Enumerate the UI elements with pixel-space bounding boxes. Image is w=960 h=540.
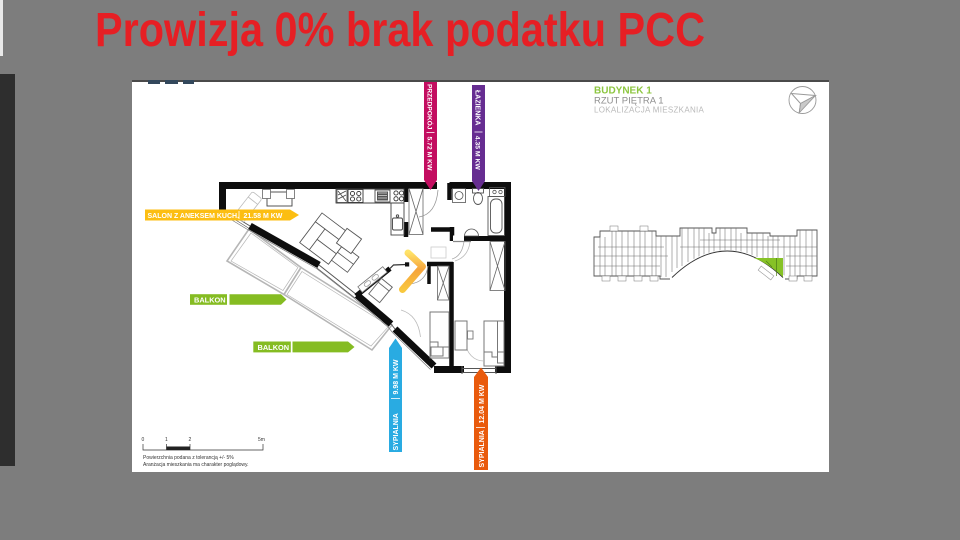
svg-text:5.72 M KW: 5.72 M KW xyxy=(426,137,433,172)
svg-text:4.35 M KW: 4.35 M KW xyxy=(474,136,481,171)
svg-text:Powierzchnia podana z toleranc: Powierzchnia podana z tolerancją +/- 5% xyxy=(143,455,234,461)
svg-text:0: 0 xyxy=(142,437,145,443)
svg-text:ŁAZIENKA: ŁAZIENKA xyxy=(474,90,481,125)
svg-text:2: 2 xyxy=(189,437,192,443)
svg-text:LOKALIZACJA MIESZKANIA: LOKALIZACJA MIESZKANIA xyxy=(594,106,705,115)
svg-text:1: 1 xyxy=(165,437,168,443)
svg-text:12.04 M KW: 12.04 M KW xyxy=(479,384,486,423)
svg-text:SYPIALNIA: SYPIALNIA xyxy=(479,430,486,467)
svg-text:PRZEDPOKÓJ: PRZEDPOKÓJ xyxy=(426,84,435,130)
svg-text:SYPIALNIA: SYPIALNIA xyxy=(393,413,400,450)
svg-text:BALKON: BALKON xyxy=(194,296,226,305)
svg-text:5m: 5m xyxy=(258,437,265,443)
svg-text:BALKON: BALKON xyxy=(258,343,290,352)
svg-text:SALON Z ANEKSEM KUCH.: SALON Z ANEKSEM KUCH. xyxy=(148,213,240,220)
svg-text:21.58 M KW: 21.58 M KW xyxy=(244,213,283,220)
svg-text:9.98 M KW: 9.98 M KW xyxy=(393,359,400,394)
svg-text:Aranżacja mieszkania ma charak: Aranżacja mieszkania ma charakter pogląd… xyxy=(143,462,249,468)
